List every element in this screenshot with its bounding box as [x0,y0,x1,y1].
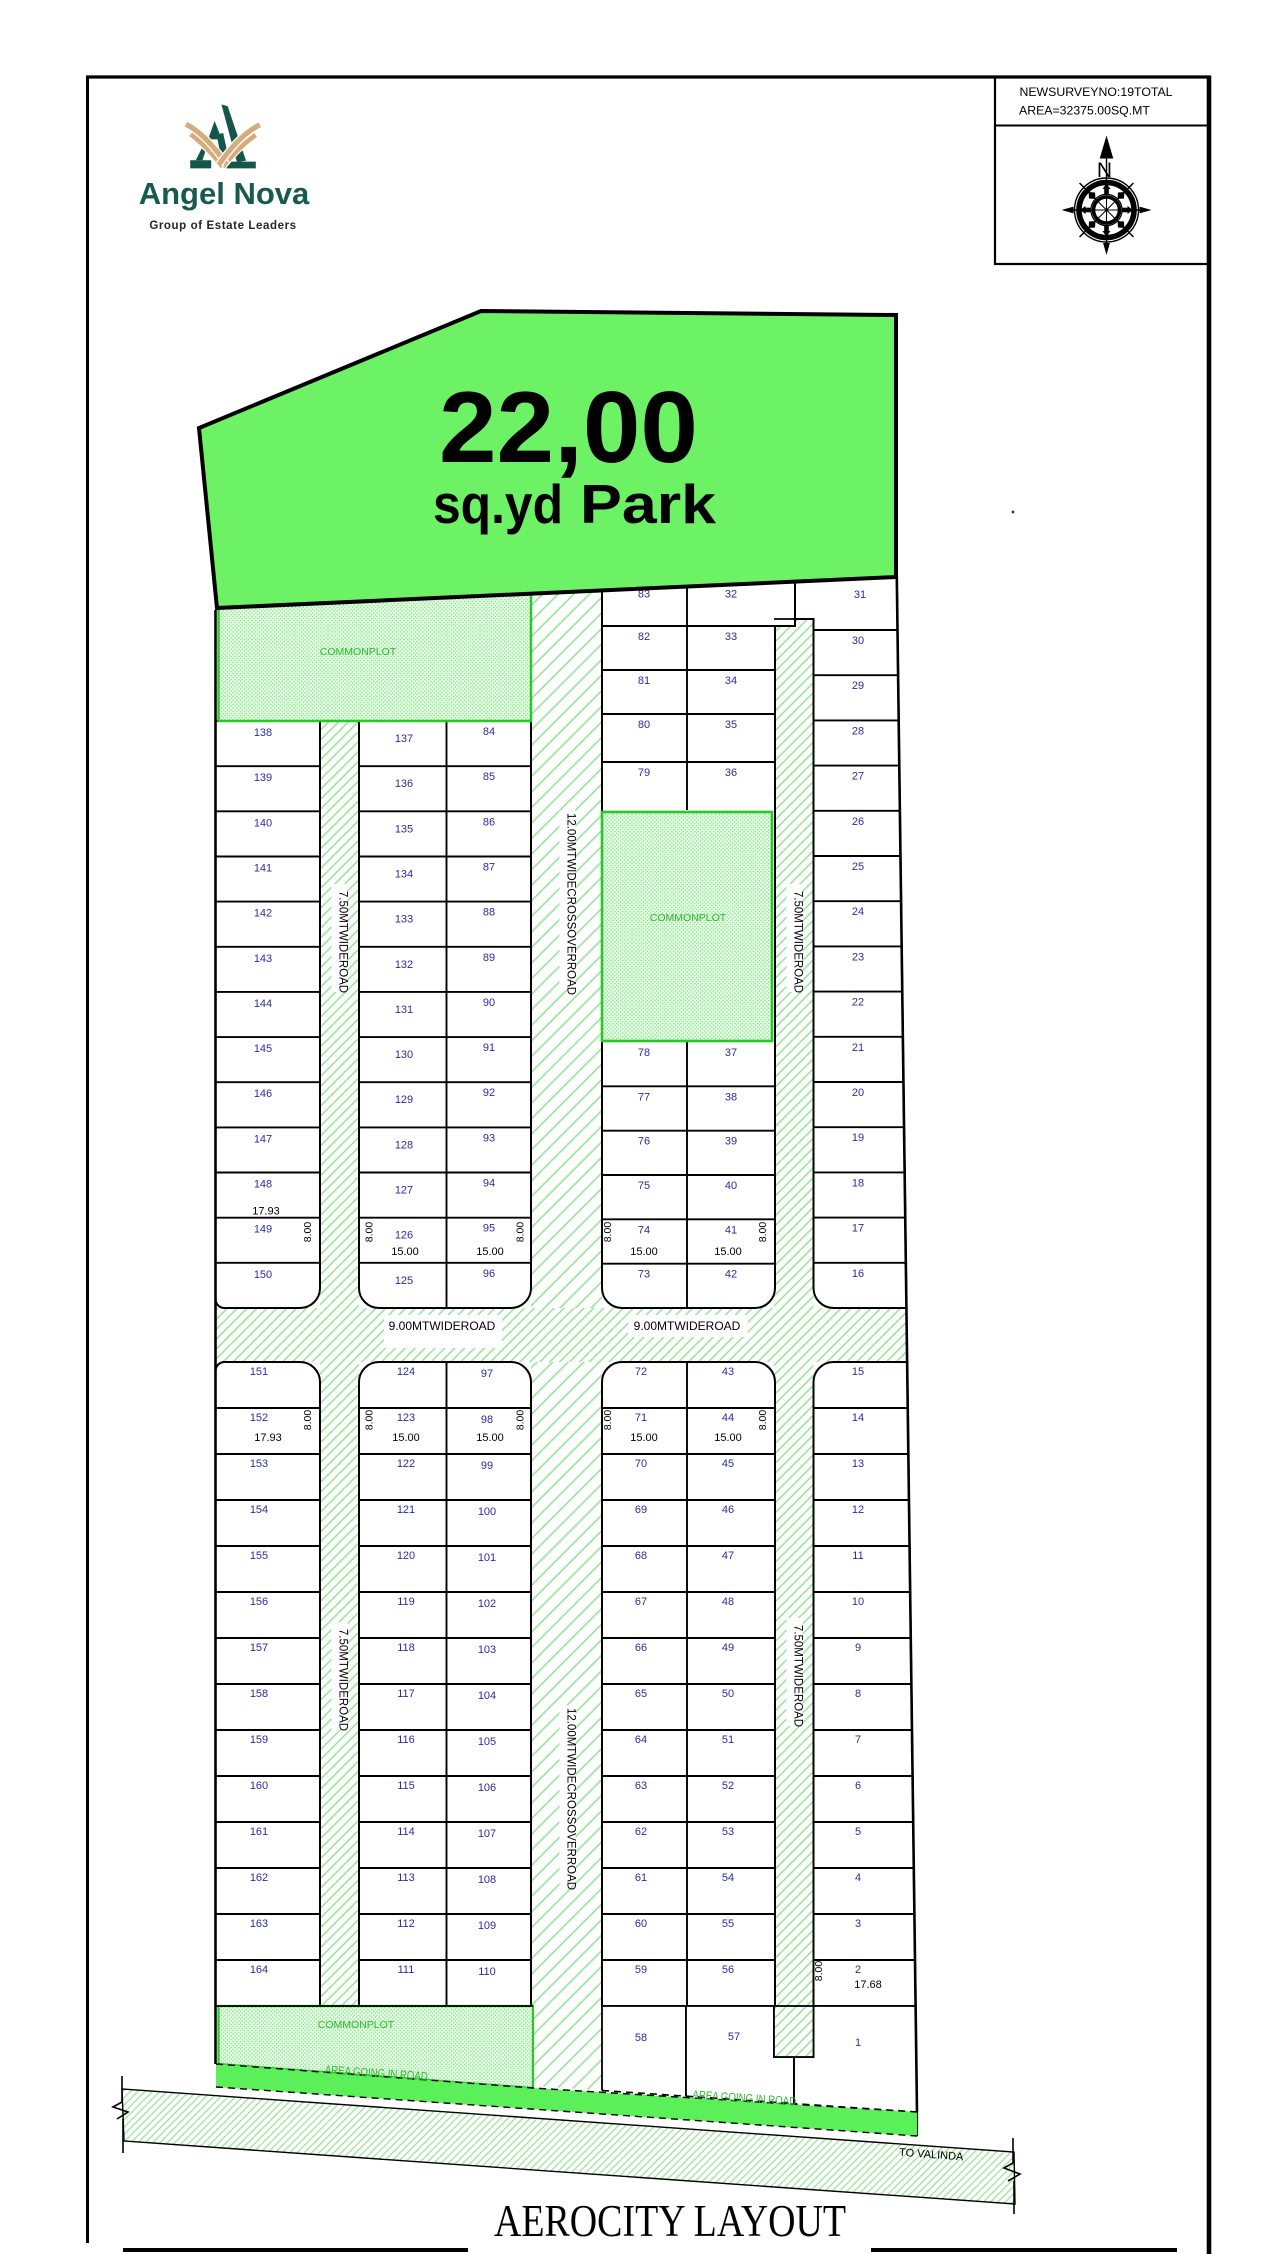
svg-text:116: 116 [397,1734,415,1746]
svg-text:144: 144 [254,998,272,1010]
svg-text:7.50MTWIDEROAD: 7.50MTWIDEROAD [792,891,804,993]
svg-text:36: 36 [725,767,737,779]
svg-text:150: 150 [254,1269,272,1281]
svg-text:82: 82 [638,631,650,643]
svg-text:122: 122 [397,1458,415,1470]
svg-text:145: 145 [254,1043,272,1055]
svg-text:17.93: 17.93 [252,1206,280,1218]
svg-text:15.00: 15.00 [476,1432,504,1444]
svg-text:AEROCITY LAYOUT: AEROCITY LAYOUT [494,2196,846,2246]
svg-text:7: 7 [855,1734,861,1746]
svg-text:97: 97 [481,1368,493,1380]
svg-text:112: 112 [397,1918,415,1930]
svg-text:42: 42 [725,1269,737,1281]
svg-text:7.50MTWIDEROAD: 7.50MTWIDEROAD [792,1625,804,1727]
svg-text:108: 108 [478,1874,496,1886]
svg-text:99: 99 [481,1460,493,1472]
svg-text:8.00: 8.00 [364,1410,376,1431]
svg-text:8.00: 8.00 [302,1410,314,1431]
svg-text:28: 28 [852,725,864,737]
svg-text:sq.yd: sq.yd [433,473,563,535]
svg-text:Angel Nova: Angel Nova [139,176,310,211]
svg-text:40: 40 [725,1180,737,1192]
svg-text:107: 107 [478,1828,496,1840]
svg-text:138: 138 [254,727,272,739]
svg-text:8.00: 8.00 [364,1222,376,1243]
svg-text:29: 29 [852,680,864,692]
svg-text:51: 51 [722,1734,734,1746]
svg-text:66: 66 [635,1642,647,1654]
svg-text:41: 41 [725,1224,737,1236]
svg-text:86: 86 [483,816,495,828]
svg-text:96: 96 [483,1268,495,1280]
svg-text:113: 113 [397,1872,415,1884]
svg-text:129: 129 [395,1094,413,1106]
svg-text:7.50MTWIDEROAD: 7.50MTWIDEROAD [337,1629,349,1731]
svg-text:17.93: 17.93 [254,1432,282,1444]
svg-text:102: 102 [478,1598,496,1610]
svg-text:65: 65 [635,1688,647,1700]
svg-text:132: 132 [395,959,413,971]
svg-text:10: 10 [852,1596,864,1608]
svg-text:72: 72 [635,1366,647,1378]
svg-text:22: 22 [852,997,864,1009]
svg-text:93: 93 [483,1132,495,1144]
svg-text:133: 133 [395,914,413,926]
svg-text:88: 88 [483,907,495,919]
svg-text:98: 98 [481,1414,493,1426]
svg-text:8.00: 8.00 [757,1222,769,1243]
svg-text:131: 131 [395,1004,413,1016]
svg-text:50: 50 [722,1688,734,1700]
svg-text:23: 23 [852,951,864,963]
svg-text:9.00MTWIDEROAD: 9.00MTWIDEROAD [634,1319,741,1333]
svg-text:123: 123 [397,1412,415,1424]
svg-text:32: 32 [725,589,737,601]
svg-text:21: 21 [852,1042,864,1054]
svg-text:158: 158 [250,1688,268,1700]
svg-text:142: 142 [254,908,272,920]
svg-text:56: 56 [722,1964,734,1976]
svg-text:8.00: 8.00 [602,1410,614,1431]
svg-text:12.00MTWIDECROSSOVERROAD: 12.00MTWIDECROSSOVERROAD [565,1708,577,1890]
svg-text:8: 8 [855,1688,861,1700]
svg-text:73: 73 [638,1269,650,1281]
svg-text:47: 47 [722,1550,734,1562]
svg-text:87: 87 [483,862,495,874]
svg-text:68: 68 [635,1550,647,1562]
svg-text:8.00: 8.00 [757,1410,769,1431]
svg-text:70: 70 [635,1458,647,1470]
svg-text:141: 141 [254,863,272,875]
svg-text:111: 111 [398,1964,415,1976]
svg-text:49: 49 [722,1642,734,1654]
svg-text:12.00MTWIDECROSSOVERROAD: 12.00MTWIDECROSSOVERROAD [565,813,577,995]
svg-text:159: 159 [250,1734,268,1746]
svg-text:125: 125 [395,1275,413,1287]
svg-text:35: 35 [725,719,737,731]
svg-text:74: 74 [638,1224,650,1236]
svg-text:148: 148 [254,1179,272,1191]
svg-text:146: 146 [254,1088,272,1100]
svg-text:15.00: 15.00 [630,1246,658,1258]
svg-text:59: 59 [635,1964,647,1976]
svg-text:8.00: 8.00 [602,1222,614,1243]
svg-text:153: 153 [250,1458,268,1470]
svg-text:61: 61 [635,1872,647,1884]
svg-text:53: 53 [722,1826,734,1838]
svg-text:77: 77 [638,1091,650,1103]
svg-text:58: 58 [635,2032,647,2044]
svg-text:90: 90 [483,997,495,1009]
svg-text:103: 103 [478,1644,496,1656]
svg-text:15.00: 15.00 [476,1246,504,1258]
svg-text:101: 101 [478,1552,496,1564]
svg-text:80: 80 [638,719,650,731]
svg-text:4: 4 [855,1872,861,1884]
svg-text:57: 57 [728,2031,740,2043]
svg-text:26: 26 [852,816,864,828]
svg-text:52: 52 [722,1780,734,1792]
svg-text:20: 20 [852,1087,864,1099]
svg-text:15.00: 15.00 [630,1432,658,1444]
svg-text:84: 84 [483,726,495,738]
svg-text:6: 6 [855,1780,861,1792]
svg-text:140: 140 [254,817,272,829]
svg-text:14: 14 [852,1412,864,1424]
svg-text:8.00: 8.00 [515,1222,527,1243]
svg-text:15.00: 15.00 [392,1432,420,1444]
svg-text:19: 19 [852,1132,864,1144]
svg-text:18: 18 [852,1177,864,1189]
svg-text:157: 157 [250,1642,268,1654]
svg-text:149: 149 [254,1224,272,1236]
svg-text:COMMONPLOT: COMMONPLOT [650,912,727,924]
svg-text:89: 89 [483,952,495,964]
svg-text:92: 92 [483,1087,495,1099]
svg-text:15.00: 15.00 [714,1246,742,1258]
svg-text:100: 100 [478,1506,496,1518]
svg-text:137: 137 [395,733,413,745]
svg-text:NEWSURVEYNO:19TOTAL: NEWSURVEYNO:19TOTAL [1019,85,1172,99]
svg-text:160: 160 [250,1780,268,1792]
svg-text:12: 12 [852,1504,864,1516]
svg-text:163: 163 [250,1918,268,1930]
svg-text:60: 60 [635,1918,647,1930]
svg-text:94: 94 [483,1178,495,1190]
svg-text:8.00: 8.00 [302,1222,314,1243]
svg-text:7.50MTWIDEROAD: 7.50MTWIDEROAD [337,891,349,993]
svg-text:121: 121 [397,1504,415,1516]
svg-text:Park: Park [580,473,716,535]
svg-text:54: 54 [722,1872,734,1884]
svg-text:85: 85 [483,771,495,783]
svg-text:N: N [1097,159,1112,182]
svg-text:AREA=32375.00SQ.MT: AREA=32375.00SQ.MT [1019,104,1150,118]
svg-text:11: 11 [852,1550,863,1562]
svg-text:114: 114 [397,1826,415,1838]
svg-text:91: 91 [483,1042,495,1054]
svg-text:152: 152 [250,1412,268,1424]
svg-text:8.00: 8.00 [515,1410,527,1431]
svg-text:110: 110 [478,1966,496,1978]
svg-text:104: 104 [478,1690,496,1702]
svg-text:135: 135 [395,823,413,835]
svg-text:39: 39 [725,1136,737,1148]
svg-text:115: 115 [397,1780,415,1792]
svg-text:17: 17 [852,1223,864,1235]
svg-text:22,00: 22,00 [439,372,698,484]
svg-text:119: 119 [397,1596,415,1608]
svg-text:95: 95 [483,1223,495,1235]
svg-text:139: 139 [254,772,272,784]
svg-text:109: 109 [478,1920,496,1932]
svg-text:79: 79 [638,767,650,779]
svg-text:Group of Estate Leaders: Group of Estate Leaders [149,220,296,232]
svg-text:43: 43 [722,1366,734,1378]
svg-text:106: 106 [478,1782,496,1794]
svg-text:44: 44 [722,1412,734,1424]
svg-text:154: 154 [250,1504,268,1516]
svg-text:16: 16 [852,1268,864,1280]
svg-text:25: 25 [852,861,864,873]
svg-text:71: 71 [635,1412,647,1424]
svg-text:13: 13 [852,1458,864,1470]
svg-text:105: 105 [478,1736,496,1748]
svg-text:COMMONPLOT: COMMONPLOT [320,646,397,658]
svg-text:9.00MTWIDEROAD: 9.00MTWIDEROAD [389,1319,496,1333]
svg-text:45: 45 [722,1458,734,1470]
svg-text:17.68: 17.68 [854,1979,882,1991]
svg-text:76: 76 [638,1136,650,1148]
svg-text:130: 130 [395,1049,413,1061]
svg-text:63: 63 [635,1780,647,1792]
svg-text:COMMONPLOT: COMMONPLOT [318,2019,395,2031]
svg-text:27: 27 [852,771,864,783]
svg-text:128: 128 [395,1139,413,1151]
svg-text:117: 117 [397,1688,415,1700]
svg-text:120: 120 [397,1550,415,1562]
svg-text:147: 147 [254,1133,272,1145]
svg-text:30: 30 [852,635,864,647]
svg-text:127: 127 [395,1185,413,1197]
svg-text:31: 31 [854,589,866,601]
svg-text:15.00: 15.00 [714,1432,742,1444]
svg-text:48: 48 [722,1596,734,1608]
svg-text:75: 75 [638,1180,650,1192]
svg-text:3: 3 [855,1918,861,1930]
svg-text:64: 64 [635,1734,647,1746]
svg-text:1: 1 [855,2037,861,2049]
svg-text:37: 37 [725,1047,737,1059]
svg-text:9: 9 [855,1642,861,1654]
svg-text:8.00: 8.00 [813,1961,825,1982]
svg-text:134: 134 [395,869,413,881]
svg-text:15: 15 [852,1366,864,1378]
svg-text:118: 118 [397,1642,415,1654]
svg-text:143: 143 [254,953,272,965]
svg-text:164: 164 [250,1964,268,1976]
svg-text:24: 24 [852,906,864,918]
svg-text:126: 126 [395,1230,413,1242]
svg-text:38: 38 [725,1091,737,1103]
svg-text:55: 55 [722,1918,734,1930]
svg-text:46: 46 [722,1504,734,1516]
svg-text:15.00: 15.00 [391,1246,419,1258]
svg-text:162: 162 [250,1872,268,1884]
svg-text:78: 78 [638,1047,650,1059]
svg-text:161: 161 [250,1826,268,1838]
svg-text:69: 69 [635,1504,647,1516]
svg-text:136: 136 [395,778,413,790]
svg-text:62: 62 [635,1826,647,1838]
svg-text:5: 5 [855,1826,861,1838]
svg-text:151: 151 [250,1366,268,1378]
svg-text:33: 33 [725,631,737,643]
svg-text:156: 156 [250,1596,268,1608]
svg-text:81: 81 [638,675,650,687]
svg-text:124: 124 [397,1366,415,1378]
svg-text:34: 34 [725,675,737,687]
svg-text:67: 67 [635,1596,647,1608]
svg-text:2: 2 [855,1964,861,1976]
svg-text:155: 155 [250,1550,268,1562]
